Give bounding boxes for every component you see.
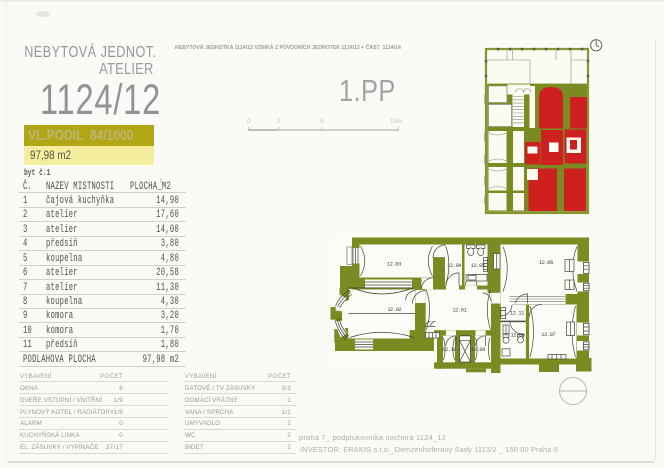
svg-text:12.03: 12.03 — [387, 262, 401, 268]
svg-text:12.04: 12.04 — [447, 263, 461, 269]
svg-text:12.06: 12.06 — [539, 260, 553, 266]
svg-text:12.01: 12.01 — [452, 308, 466, 314]
svg-text:12.09: 12.09 — [471, 347, 485, 353]
svg-text:12.07: 12.07 — [541, 332, 555, 338]
svg-text:12.08: 12.08 — [510, 333, 524, 339]
svg-text:12.02: 12.02 — [387, 307, 401, 313]
svg-text:12.10: 12.10 — [442, 347, 456, 353]
svg-text:12.05: 12.05 — [471, 263, 485, 269]
svg-text:12.11: 12.11 — [510, 311, 524, 317]
